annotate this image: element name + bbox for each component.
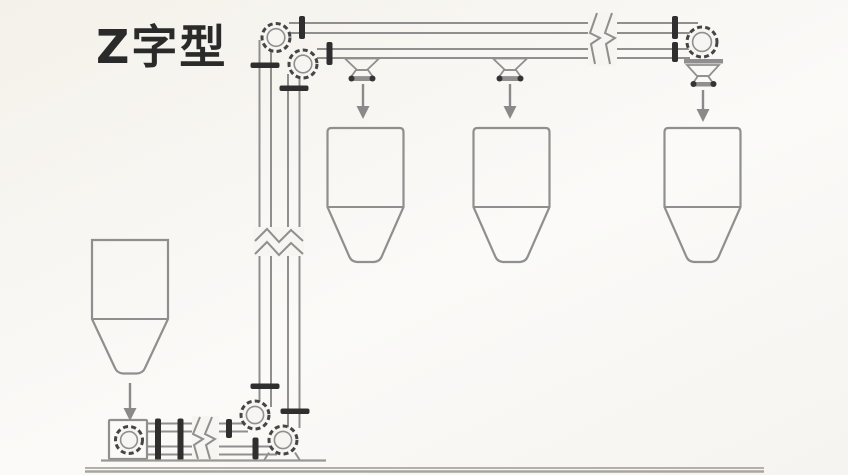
discharge-hopper-2-valve-cap-left — [497, 76, 503, 82]
discharge-hopper-1-valve — [351, 70, 373, 77]
discharge-head-bar — [684, 59, 723, 64]
discharge-hopper-2-valve-cap-right — [518, 76, 524, 82]
wheel-bottom-lower-outer — [269, 426, 297, 454]
flange-bottom-run-3 — [226, 419, 232, 438]
flange-bottom-run-4 — [253, 438, 259, 460]
diagram-svg — [0, 0, 848, 475]
flange-vertical-left-top — [251, 63, 280, 69]
silo-3-body — [665, 128, 741, 262]
feed-hopper-body — [92, 240, 168, 374]
flange-vertical-right-top — [280, 86, 309, 92]
wheel-top-left-outer — [262, 24, 290, 52]
flange-bottom-run-1 — [155, 419, 161, 461]
discharge-hopper-1-valve-cap-right — [370, 76, 376, 82]
discharge-hopper-1-funnel — [345, 59, 379, 71]
flange-top-run-2 — [327, 42, 333, 65]
flange-top-right-2 — [672, 42, 678, 62]
discharge-hopper-2-valve — [499, 70, 521, 77]
flange-top-right-1 — [672, 16, 678, 39]
wheel-top-left2-outer — [289, 50, 317, 78]
feed-wheel-outer — [116, 427, 143, 454]
flow-arrow-2-head — [504, 106, 517, 119]
wheel-top-right-outer — [687, 27, 717, 57]
discharge-head-valve-cap-left — [691, 81, 697, 87]
flow-arrow-1-head — [357, 106, 370, 119]
flange-vertical-left-bottom — [251, 384, 280, 390]
discharge-head-funnel — [687, 65, 719, 76]
flange-bottom-run-2 — [178, 419, 184, 461]
flow-arrow-3-head — [697, 109, 710, 122]
silo-2-body — [474, 128, 550, 262]
wheel-bottom-upper-outer — [241, 401, 269, 429]
discharge-hopper-1-valve-cap-left — [349, 76, 355, 82]
discharge-hopper-2-funnel — [493, 59, 527, 71]
flange-vertical-right-bottom — [281, 409, 310, 415]
wheel-support-right — [295, 453, 300, 461]
discharge-head-valve-cap-right — [711, 81, 717, 87]
silo-1-body — [328, 128, 404, 262]
flange-top-run-1 — [299, 16, 305, 39]
discharge-head-valve — [693, 76, 713, 83]
schematic-page: Z字型 — [0, 0, 848, 475]
